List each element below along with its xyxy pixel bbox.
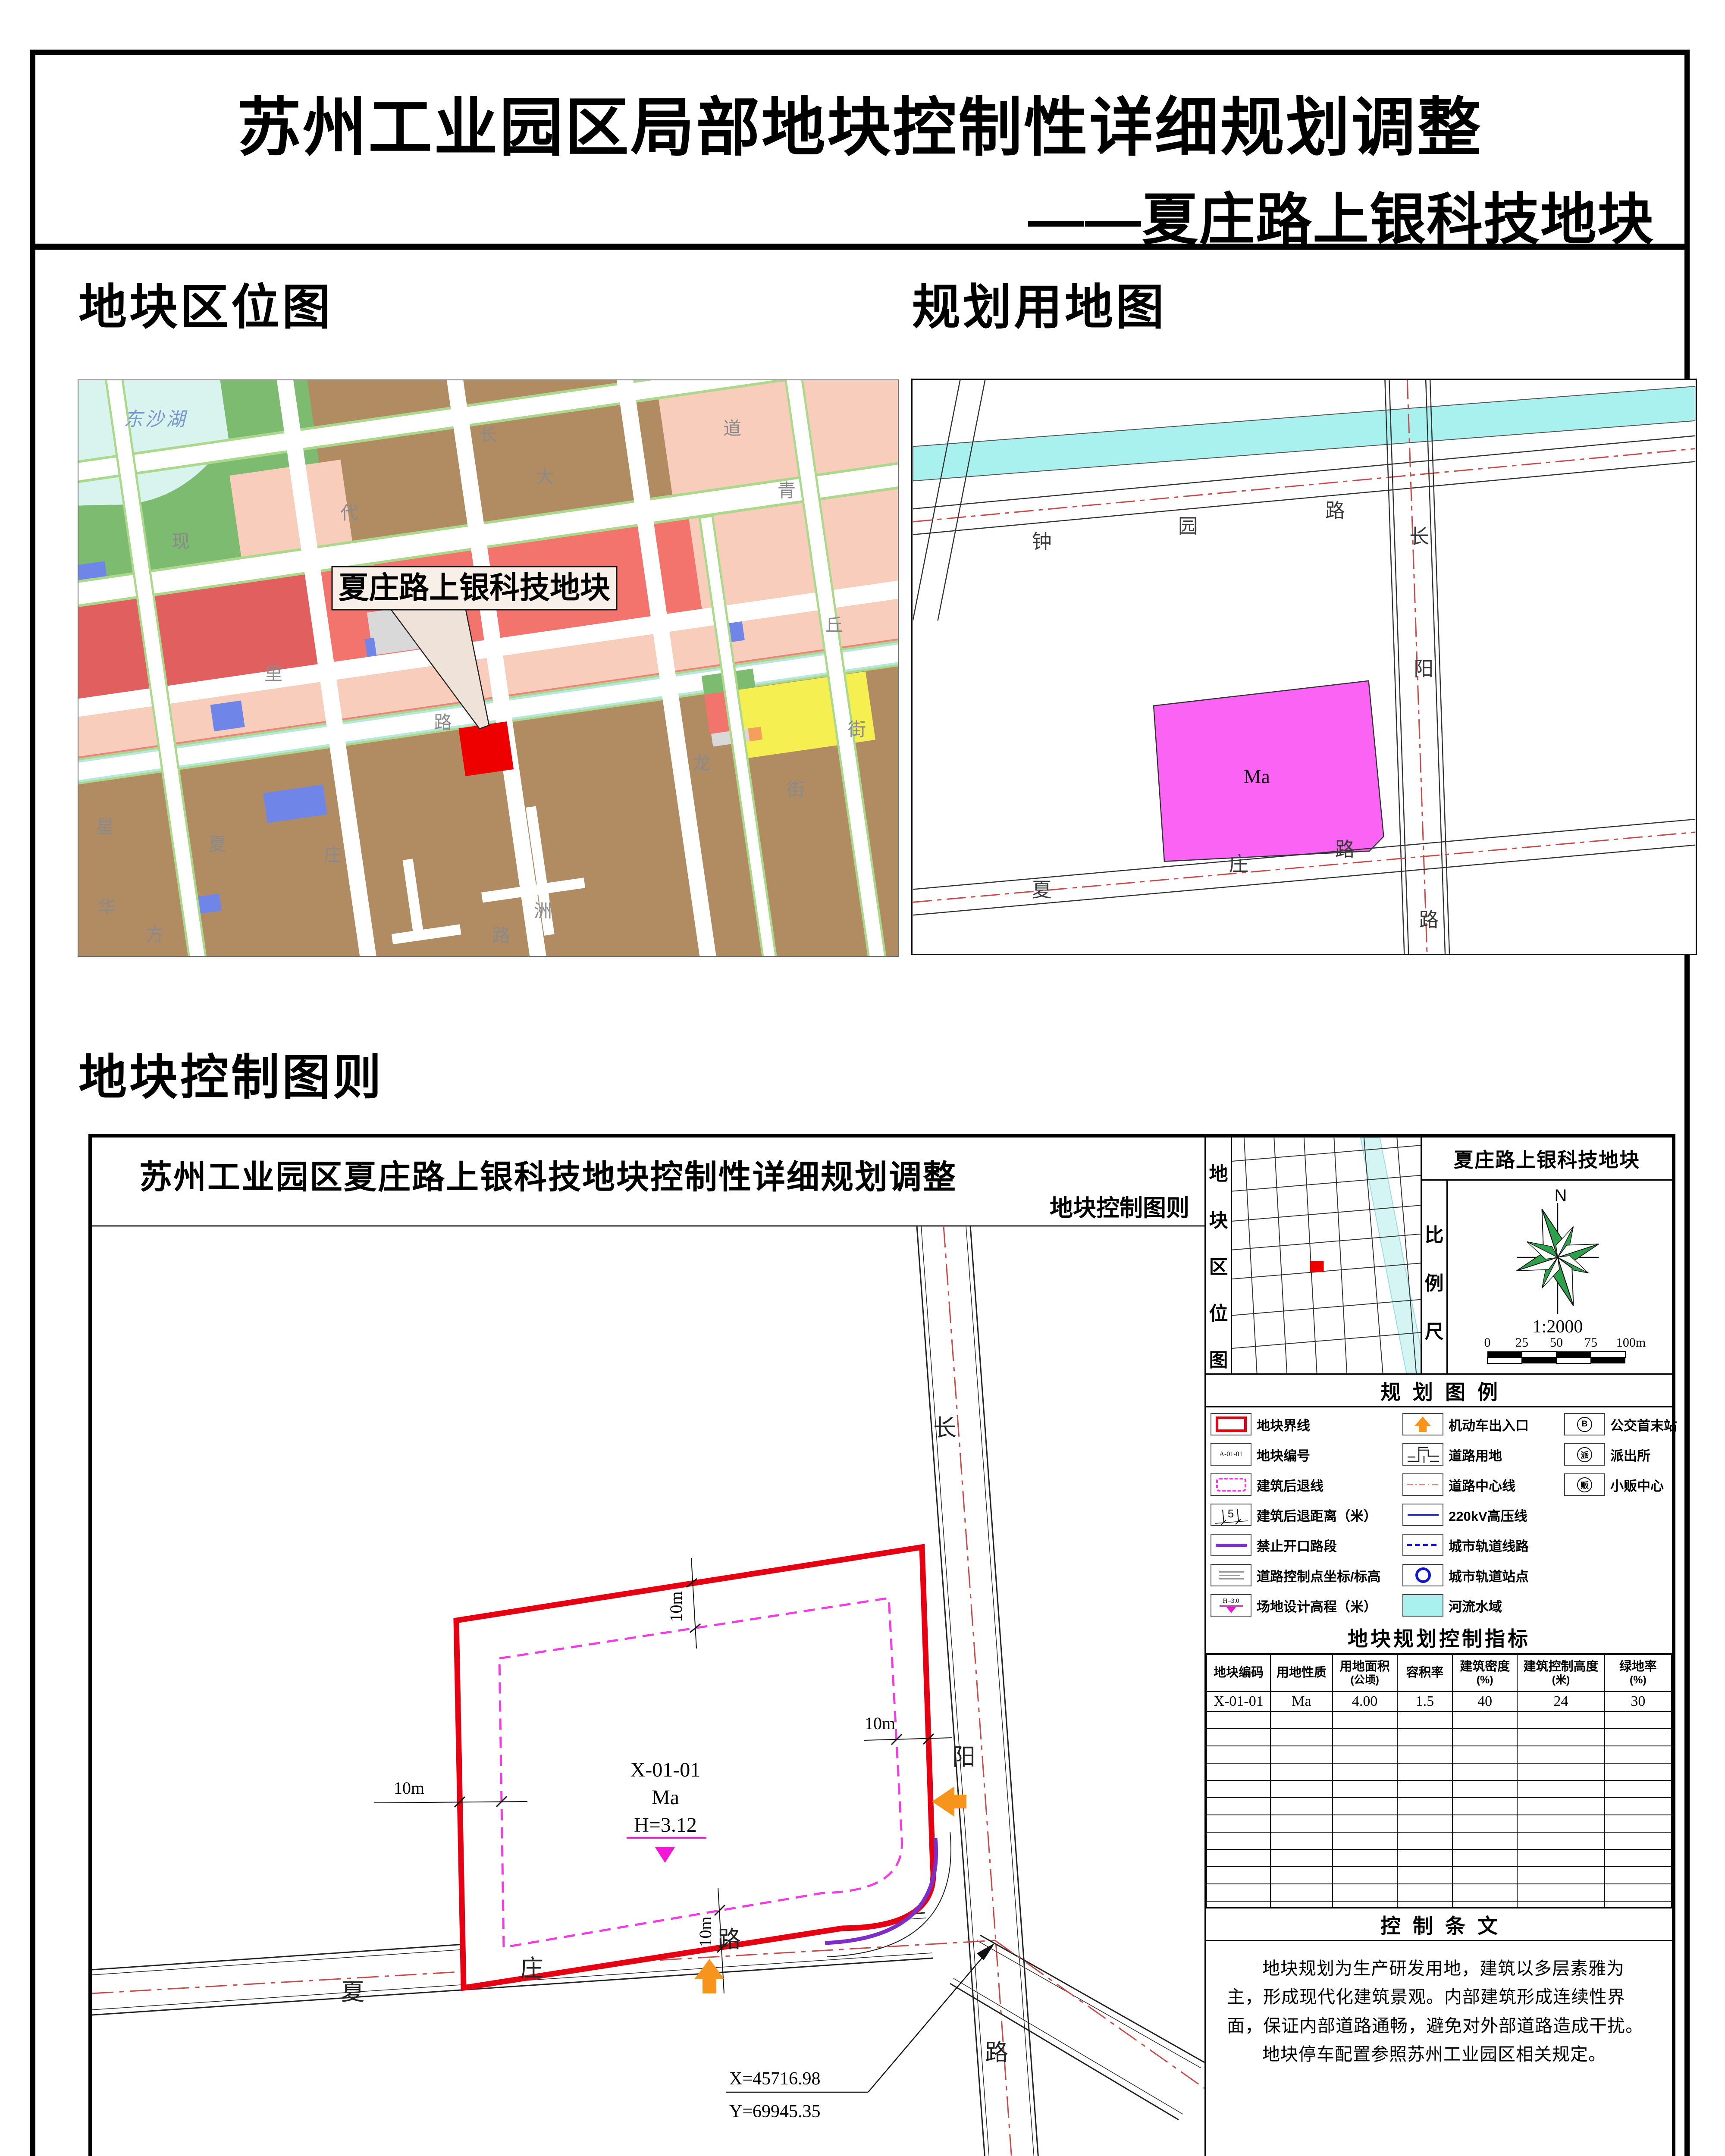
indicator-empty-row [1207, 1711, 1672, 1729]
svg-text:50: 50 [1550, 1335, 1563, 1350]
provisions-text: 地块规划为生产研发用地，建筑以多层素雅为主，形成现代化建筑景观。内部建筑形成连续… [1206, 1941, 1672, 2156]
setback-line-icon [1211, 1473, 1251, 1496]
road-label: 长 [479, 424, 497, 445]
coord-y: Y=69945.35 [729, 2102, 821, 2122]
road-label: 街 [787, 780, 805, 800]
page-title: 苏州工业园区局部地块控制性详细规划调整 [35, 75, 1684, 168]
indicator-empty-row [1207, 1729, 1672, 1746]
road-label: 阳 [952, 1744, 975, 1770]
hawker-centre-icon: 贩 [1564, 1473, 1605, 1496]
road-label: 青 [778, 480, 796, 501]
road-label: 丘 [825, 615, 843, 635]
indicator-table-wrap: 地块编码 用地性质 用地面积(公顷) 容积率 建筑密度(%) 建筑控制高度(米)… [1206, 1654, 1672, 1908]
rail-line-icon [1402, 1534, 1443, 1556]
road-label: 路 [492, 925, 510, 946]
road-label: 钟 [1032, 530, 1052, 553]
road-label: 路 [985, 2040, 1008, 2065]
location-map: 长大道青现代里路星夏庄洲路华方龙街街丘 东沙湖 夏庄路上银科技地块 [78, 379, 899, 957]
road-label: 路 [1335, 838, 1355, 861]
road-label: 长 [933, 1415, 957, 1441]
legend-title: 规划图例 [1206, 1375, 1672, 1407]
landuse-map: 钟园路长阳路夏庄路 Ma [911, 379, 1697, 955]
road-label: 龙 [693, 753, 711, 773]
landuse-map-svg: 钟园路长阳路夏庄路 Ma [913, 380, 1696, 954]
scale-bar-icon [1487, 1351, 1625, 1363]
road-label: 华 [98, 897, 116, 918]
compass-svg: N [1448, 1181, 1668, 1372]
no-opening-icon [1211, 1534, 1251, 1556]
section-title-landuse-map: 规划用地图 [912, 268, 1167, 338]
bus-terminal-icon: B [1564, 1413, 1605, 1435]
indicator-empty-row [1207, 1849, 1672, 1867]
svg-text:25: 25 [1515, 1335, 1528, 1350]
indicator-empty-row [1207, 1780, 1672, 1798]
legend-item: 220kV高压线 [1398, 1500, 1560, 1530]
vertical-label-char: 例 [1425, 1268, 1444, 1295]
panel-scale-label: 比例尺 [1422, 1181, 1448, 1373]
road-label: 方 [146, 924, 164, 945]
dim-top-label: 10m [666, 1591, 686, 1622]
setback-distance-icon: 5 [1211, 1504, 1251, 1526]
indicator-header-row: 地块编码 用地性质 用地面积(公顷) 容积率 建筑密度(%) 建筑控制高度(米)… [1207, 1655, 1672, 1692]
plot-elevation: H=3.12 [634, 1814, 697, 1836]
svg-text:5: 5 [1228, 1507, 1234, 1520]
minimap-svg [1232, 1138, 1421, 1373]
svg-text:0: 0 [1484, 1335, 1491, 1350]
legend-item: 道路控制点坐标/标高 [1206, 1560, 1398, 1590]
legend-item: 建筑后退线 [1206, 1470, 1398, 1500]
rail-station-icon [1402, 1564, 1443, 1586]
vehicle-entrance-icon [1402, 1413, 1443, 1435]
road-label: 夏 [1032, 878, 1052, 901]
road-label: 庄 [520, 1955, 543, 1981]
road-label: 庄 [324, 845, 342, 865]
indicator-table-empty [1207, 1711, 1672, 1908]
vertical-label-char: 尺 [1425, 1316, 1444, 1344]
legend-item: B 公交首末站 [1560, 1409, 1670, 1439]
road-label: 洲 [534, 901, 552, 921]
legend-item: 河流水域 [1398, 1590, 1560, 1620]
indicator-empty-row [1207, 1746, 1672, 1763]
ma-parcel-label: Ma [1244, 765, 1270, 787]
legend-item: 派 派出所 [1560, 1439, 1670, 1470]
road-label: 路 [434, 712, 452, 733]
plot-number-icon: A-01-01 [1211, 1443, 1251, 1466]
drawing-title: 苏州工业园区夏庄路上银科技地块控制性详细规划调整 [139, 1159, 957, 1196]
vertical-label-char: 位 [1209, 1298, 1228, 1326]
dim-left-label: 10m [394, 1778, 424, 1798]
panel-block-title: 夏庄路上银科技地块 [1422, 1138, 1672, 1181]
road-label: 道 [723, 418, 741, 439]
north-label: N [1555, 1186, 1567, 1205]
panel-side-label: 地块区位图 [1206, 1138, 1232, 1373]
callout-label: 夏庄路上银科技地块 [339, 571, 610, 605]
scale-ratio: 1:2000 [1533, 1317, 1583, 1337]
police-station-icon: 派 [1564, 1443, 1605, 1466]
drawing-subtitle: 地块控制图则 [1050, 1195, 1189, 1221]
road-label: 阳 [1414, 658, 1433, 680]
coord-x: X=45716.98 [729, 2069, 821, 2089]
control-chart-drawing: 苏州工业园区夏庄路上银科技地块控制性详细规划调整 地块控制图则 [92, 1138, 1206, 2156]
panel-minimap [1232, 1138, 1422, 1373]
road-label: 路 [1419, 909, 1439, 931]
legend-item: 城市轨道站点 [1398, 1560, 1560, 1590]
legend-item: 贩 小贩中心 [1560, 1470, 1670, 1500]
page-subtitle: ——夏庄路上银科技地块 [35, 174, 1654, 255]
hv-line-icon [1402, 1504, 1443, 1526]
legend-item: 道路用地 [1398, 1439, 1560, 1470]
road-label: 路 [1325, 499, 1345, 522]
svg-text:75: 75 [1584, 1335, 1597, 1350]
legend-item: 道路中心线 [1398, 1470, 1560, 1500]
provision-paragraph: 地块规划为生产研发用地，建筑以多层素雅为主，形成现代化建筑景观。内部建筑形成连续… [1227, 1954, 1650, 2040]
vertical-label-char: 地 [1209, 1158, 1228, 1186]
legend-item: 5 建筑后退距离（米） [1206, 1500, 1398, 1530]
provisions-title: 控制条文 [1206, 1908, 1672, 1941]
road-label: 大 [536, 467, 554, 487]
landuse-blocks [78, 380, 898, 956]
legend-item: 机动车出入口 [1398, 1409, 1560, 1439]
indicator-empty-row [1207, 1763, 1672, 1780]
indicator-empty-row [1207, 1884, 1672, 1901]
provision-paragraph: 地块停车配置参照苏州工业园区相关规定。 [1227, 2040, 1650, 2068]
road-label: 星 [96, 817, 114, 837]
location-map-svg: 长大道青现代里路星夏庄洲路华方龙街街丘 东沙湖 夏庄路上银科技地块 [78, 380, 898, 956]
legend-item: 禁止开口路段 [1206, 1530, 1398, 1560]
scale-bar-labels: 0 25 50 75 100m [1484, 1335, 1646, 1350]
site-elevation-icon: H=3.0 [1211, 1594, 1251, 1617]
plot-code: X-01-01 [630, 1758, 701, 1781]
road-label: 街 [848, 719, 866, 740]
indicator-table-body: X-01-01Ma 4.001.5 4024 30 [1207, 1692, 1672, 1711]
legend-item: A-01-01 地块编号 [1206, 1439, 1398, 1470]
plan-sheet: { "header": { "title_line1": "苏州工业园区局部地块… [0, 0, 1725, 2156]
road-label: 长 [1409, 525, 1429, 548]
dim-bottom-label: 10m [696, 1916, 715, 1947]
indicator-empty-row [1207, 1798, 1672, 1815]
indicator-table: 地块编码 用地性质 用地面积(公顷) 容积率 建筑密度(%) 建筑控制高度(米)… [1206, 1654, 1672, 1908]
legend-item: H=3.0 场地设计高程（米） [1206, 1590, 1398, 1620]
indicator-empty-row [1207, 1901, 1672, 1908]
panel-compass-area: N [1448, 1181, 1672, 1373]
control-chart-panel: 地块区位图 夏 [1206, 1138, 1672, 2156]
indicator-empty-row [1207, 1867, 1672, 1884]
title-block: 苏州工业园区局部地块控制性详细规划调整 ——夏庄路上银科技地块 [35, 55, 1684, 250]
dim-right-label: 10m [865, 1714, 895, 1733]
plot-boundary-icon [1211, 1413, 1251, 1435]
vertical-label-char: 图 [1209, 1344, 1228, 1372]
vertical-label-char: 块 [1209, 1205, 1228, 1232]
road-label: 现 [172, 531, 190, 552]
highlight-plot [458, 721, 514, 776]
road-label: 里 [264, 664, 282, 684]
legend: 地块界线 A-01-01 地块编号 建筑后退线 5 [1206, 1407, 1672, 1621]
svg-text:100m: 100m [1616, 1335, 1646, 1350]
river-icon [1402, 1594, 1443, 1617]
vertical-label-char: 比 [1425, 1219, 1444, 1247]
road-label: 庄 [1229, 853, 1249, 875]
minimap-plot [1310, 1261, 1324, 1272]
legend-item: 地块界线 [1206, 1409, 1398, 1439]
section-title-location-map: 地块区位图 [78, 268, 333, 338]
section-title-control-chart: 地块控制图则 [78, 1038, 384, 1108]
indicator-empty-row [1207, 1832, 1672, 1849]
lake-label: 东沙湖 [124, 409, 188, 430]
control-point-icon [1211, 1564, 1251, 1586]
indicators-title: 地块规划控制指标 [1206, 1621, 1672, 1654]
plot-use: Ma [652, 1786, 679, 1809]
elevation-underline [627, 1837, 706, 1839]
drawing-svg: 苏州工业园区夏庄路上银科技地块控制性详细规划调整 地块控制图则 [92, 1138, 1204, 2156]
indicator-data-row: X-01-01Ma 4.001.5 4024 30 [1207, 1692, 1672, 1711]
road-label: 夏 [208, 834, 226, 854]
road-label: 代 [340, 503, 358, 523]
road-land-icon [1402, 1443, 1443, 1466]
control-chart: 苏州工业园区夏庄路上银科技地块控制性详细规划调整 地块控制图则 [88, 1134, 1675, 2156]
road-label: 夏 [341, 1979, 364, 2005]
indicator-empty-row [1207, 1815, 1672, 1832]
legend-item: 城市轨道线路 [1398, 1530, 1560, 1560]
road-label: 路 [718, 1927, 741, 1952]
vertical-label-char: 区 [1209, 1251, 1228, 1279]
road-centerline-icon [1402, 1473, 1443, 1496]
road-label: 园 [1178, 515, 1198, 537]
